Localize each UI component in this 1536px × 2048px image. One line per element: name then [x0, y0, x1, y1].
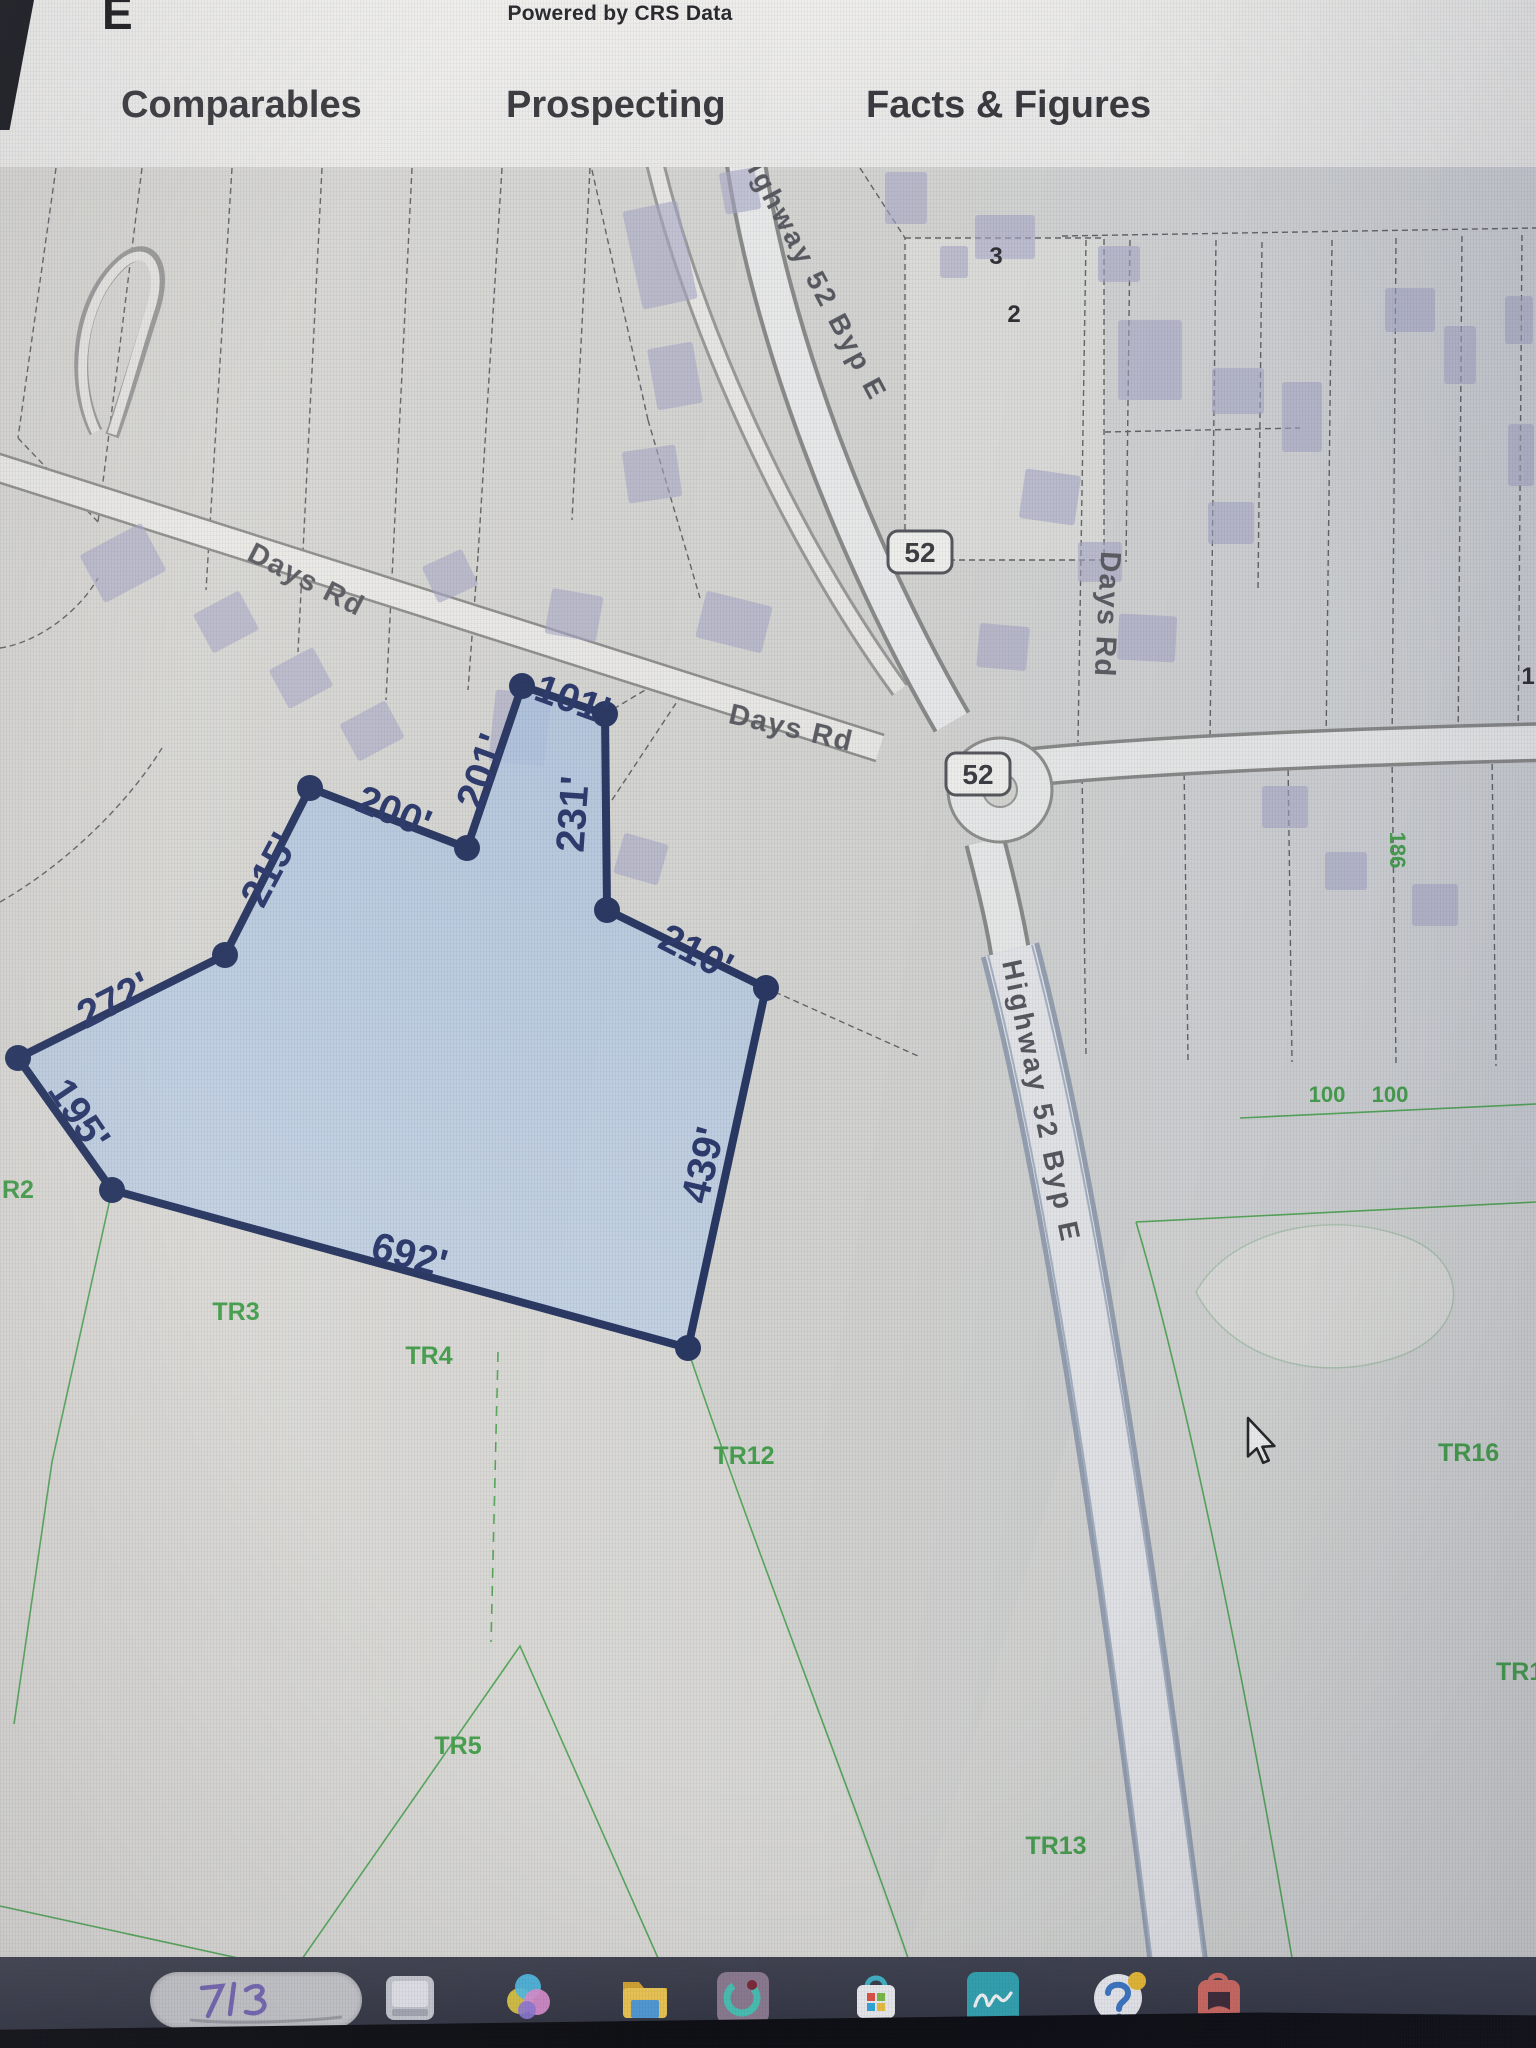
lot-number: 3: [989, 243, 1002, 270]
lot-number: 2: [1007, 301, 1020, 328]
route-shield: 52: [888, 531, 952, 573]
screen: E Powered by CRS Data t Comparables Pros…: [0, 0, 1536, 2048]
tract-label: TR13: [1025, 1832, 1086, 1860]
scribble-icon: [150, 1972, 362, 2028]
route-shield-number: 52: [904, 537, 935, 568]
tract-label: TR3: [212, 1298, 259, 1326]
lot-number: 100: [1309, 1082, 1346, 1107]
partial-letter: E: [102, 0, 133, 40]
parcel-map[interactable]: 101' 201' 231' 200' 215' 272' 195' 692' …: [0, 167, 1536, 1957]
tract-label: TR12: [713, 1442, 774, 1470]
powered-by-label: Powered by CRS Data: [500, 2, 740, 26]
tract-label: TR4: [405, 1342, 452, 1370]
taskbar-icon-swirl-app[interactable]: [715, 1970, 771, 2026]
tab-facts-figures[interactable]: Facts & Figures: [866, 84, 1151, 127]
road-label-days-rd: Days Rd: [1088, 550, 1127, 678]
taskbar-icon-file-explorer[interactable]: [617, 1970, 673, 2026]
folder-icon: [617, 1970, 673, 2026]
tract-label: TR1: [1496, 1658, 1536, 1686]
lot-number: 1: [1521, 663, 1534, 690]
window-icon: [382, 1970, 438, 2026]
pinwheel-icon: [500, 1970, 556, 2026]
lot-number: 186: [1385, 832, 1410, 869]
tract-label: R2: [2, 1176, 34, 1204]
tab-comparables[interactable]: Comparables: [121, 84, 362, 127]
lot-number: 100: [1372, 1082, 1409, 1107]
swirl-tile-icon: [715, 1970, 771, 2026]
dimension-label: 231': [548, 775, 597, 854]
tract-label: TR16: [1438, 1439, 1499, 1467]
taskbar-search-pill[interactable]: [150, 1972, 362, 2028]
tab-prospecting[interactable]: Prospecting: [506, 84, 726, 127]
taskbar-icon-window-app[interactable]: [382, 1970, 438, 2026]
route-shield: 52: [946, 753, 1010, 795]
app-header: E Powered by CRS Data t Comparables Pros…: [0, 0, 1536, 168]
taskbar-icon-photos[interactable]: [500, 1970, 556, 2026]
route-shield-number: 52: [962, 759, 993, 790]
tract-label: TR5: [434, 1732, 481, 1760]
photo-bezel-corner: [0, 0, 34, 130]
